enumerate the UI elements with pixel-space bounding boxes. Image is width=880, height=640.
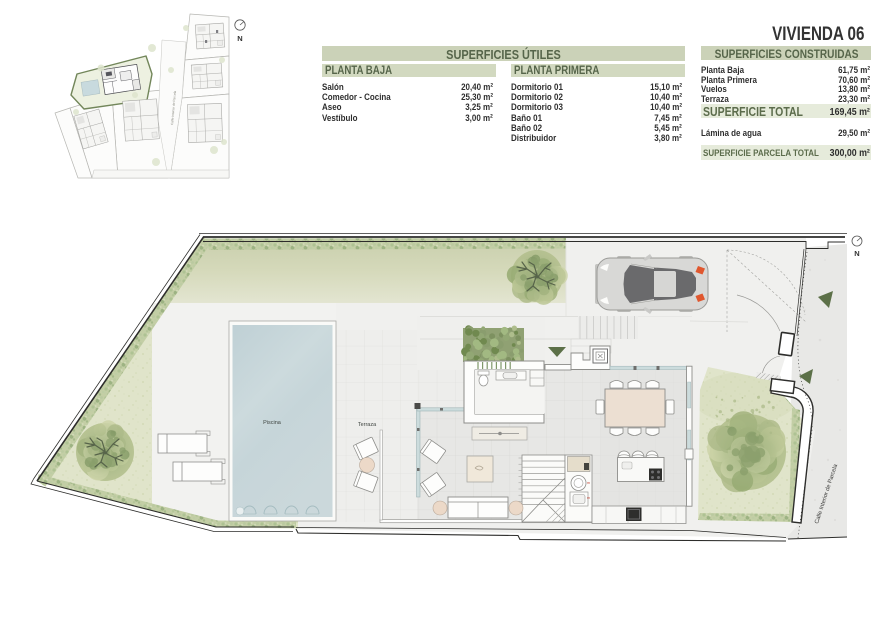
svg-text:m: m — [587, 496, 590, 500]
svg-text:Terraza: Terraza — [358, 422, 377, 428]
svg-text:N: N — [237, 34, 242, 43]
svg-text:N: N — [854, 249, 859, 258]
svg-text:m: m — [587, 481, 590, 485]
svg-text:Piscina: Piscina — [263, 420, 282, 426]
